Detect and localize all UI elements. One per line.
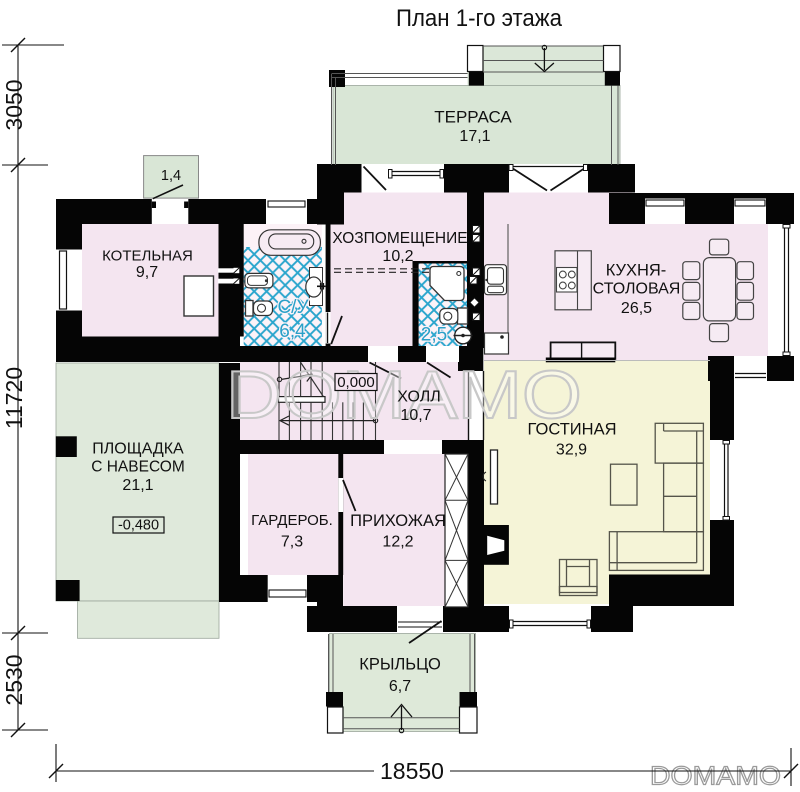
svg-text:ГОСТИНАЯ: ГОСТИНАЯ	[528, 421, 617, 439]
svg-text:ХОЗПОМЕЩЕНИЕ: ХОЗПОМЕЩЕНИЕ	[332, 230, 467, 247]
svg-text:12,2: 12,2	[382, 534, 413, 551]
svg-text:DOMAMO: DOMAMO	[650, 761, 781, 791]
svg-text:ТЕРРАСА: ТЕРРАСА	[434, 108, 512, 127]
svg-text:6,4: 6,4	[279, 321, 306, 342]
svg-text:С НАВЕСОМ: С НАВЕСОМ	[91, 459, 185, 476]
svg-text:18550: 18550	[380, 758, 444, 784]
svg-text:7,3: 7,3	[281, 534, 303, 551]
svg-text:ГАРДЕРОБ.: ГАРДЕРОБ.	[251, 512, 333, 529]
svg-text:11720: 11720	[1, 367, 27, 429]
svg-text:ПЛОЩАДКА: ПЛОЩАДКА	[92, 441, 184, 458]
svg-text:3050: 3050	[1, 79, 27, 130]
svg-text:ПРИХОЖАЯ: ПРИХОЖАЯ	[350, 512, 446, 530]
svg-text:0,000: 0,000	[337, 374, 375, 391]
svg-text:1,4: 1,4	[161, 168, 181, 184]
svg-text:2530: 2530	[1, 654, 27, 705]
svg-text:2,5: 2,5	[421, 325, 447, 346]
svg-text:С/У: С/У	[277, 297, 309, 318]
svg-text:10,2: 10,2	[382, 248, 413, 265]
svg-text:План 1-го этажа: План 1-го этажа	[396, 5, 563, 32]
svg-text:9,7: 9,7	[136, 264, 158, 281]
svg-text:10,7: 10,7	[400, 407, 431, 424]
svg-text:КУХНЯ-: КУХНЯ-	[606, 262, 667, 280]
svg-text:КОТЕЛЬНАЯ: КОТЕЛЬНАЯ	[102, 248, 193, 265]
svg-text:17,1: 17,1	[459, 128, 490, 145]
svg-text:32,9: 32,9	[556, 442, 587, 459]
svg-text:СТОЛОВАЯ: СТОЛОВАЯ	[593, 281, 681, 298]
svg-text:ХОЛЛ: ХОЛЛ	[397, 389, 440, 406]
svg-text:-0,480: -0,480	[118, 518, 159, 534]
svg-text:21,1: 21,1	[122, 477, 153, 494]
svg-text:6,7: 6,7	[389, 678, 411, 695]
svg-text:26,5: 26,5	[621, 300, 652, 317]
svg-text:КРЫЛЬЦО: КРЫЛЬЦО	[359, 656, 441, 674]
